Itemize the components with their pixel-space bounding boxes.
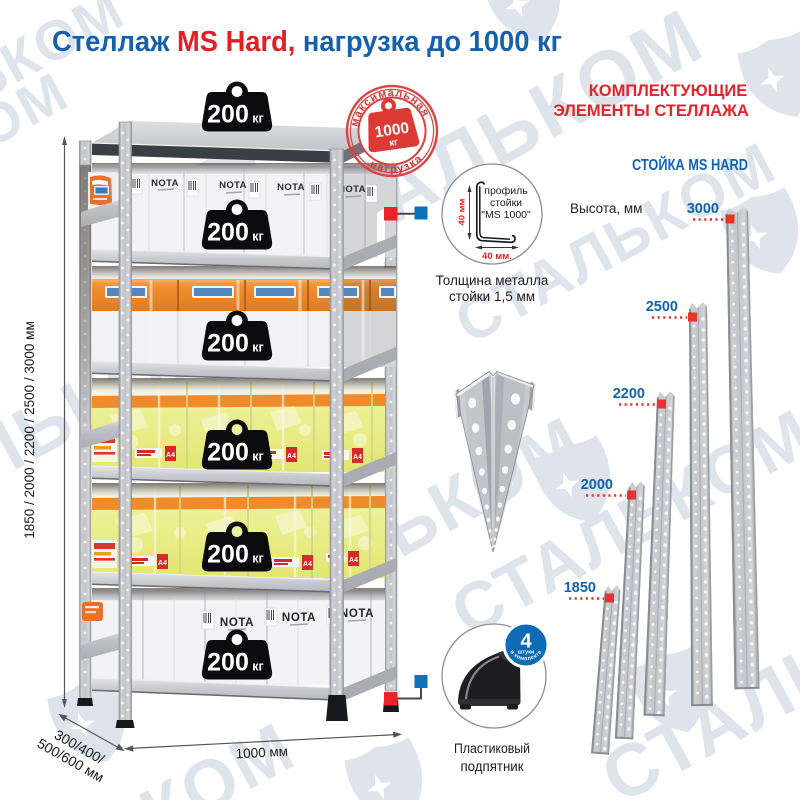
svg-text:200: 200 [207, 330, 249, 358]
svg-text:NOTA: NOTA [340, 608, 374, 620]
svg-text:1000 мм: 1000 мм [235, 744, 288, 762]
svg-text:Толщина металла: Толщина металла [436, 273, 549, 288]
svg-text:стойки: стойки [490, 197, 522, 209]
svg-text:A4: A4 [287, 453, 296, 460]
svg-text:КОМПЛЕКТУЮЩИЕ: КОМПЛЕКТУЮЩИЕ [589, 82, 748, 100]
svg-text:A4: A4 [158, 560, 167, 567]
svg-text:подпятник: подпятник [461, 759, 524, 774]
svg-text:A4: A4 [349, 557, 358, 564]
svg-text:"MS 1000": "MS 1000" [481, 209, 531, 221]
svg-text:200: 200 [207, 219, 249, 247]
svg-text:2500: 2500 [646, 299, 678, 315]
svg-text:40 мм: 40 мм [457, 199, 467, 226]
svg-text:A4: A4 [166, 452, 175, 459]
svg-text:кг: кг [252, 660, 263, 674]
svg-text:40 мм.: 40 мм. [482, 251, 512, 262]
svg-text:1850: 1850 [564, 580, 596, 596]
svg-text:Стеллаж MS Hard, нагрузка до 1: Стеллаж MS Hard, нагрузка до 1000 кг [52, 26, 562, 58]
svg-text:200: 200 [207, 649, 249, 677]
svg-text:2000: 2000 [581, 477, 613, 493]
svg-text:кг: кг [252, 552, 263, 566]
svg-text:200: 200 [207, 541, 249, 569]
svg-text:NOTA: NOTA [282, 612, 316, 624]
svg-text:NOTA: NOTA [219, 180, 247, 191]
svg-text:NOTA: NOTA [277, 182, 305, 193]
svg-text:3000: 3000 [687, 201, 719, 217]
svg-text:кг: кг [252, 450, 263, 464]
svg-text:штуки: штуки [518, 650, 535, 656]
svg-text:Пластиковый: Пластиковый [454, 741, 530, 756]
svg-text:2200: 2200 [613, 386, 645, 402]
svg-text:ЭЛЕМЕНТЫ СТЕЛЛАЖА: ЭЛЕМЕНТЫ СТЕЛЛАЖА [553, 102, 749, 120]
svg-text:A4: A4 [353, 454, 362, 461]
svg-text:Высота, мм: Высота, мм [570, 201, 642, 216]
svg-text:NOTA: NOTA [151, 178, 179, 189]
svg-text:кг: кг [389, 137, 399, 149]
svg-text:СТОЙКА MS HARD: СТОЙКА MS HARD [632, 156, 748, 174]
svg-text:кг: кг [252, 341, 263, 355]
svg-text:200: 200 [207, 439, 249, 467]
svg-text:кг: кг [252, 230, 263, 244]
svg-text:NOTA: NOTA [220, 617, 254, 629]
svg-text:кг: кг [252, 112, 263, 126]
svg-text:A4: A4 [303, 561, 312, 568]
svg-text:1850 / 2000 / 2200 / 2500 / 30: 1850 / 2000 / 2200 / 2500 / 3000 мм [22, 321, 37, 538]
svg-text:профиль: профиль [484, 185, 528, 197]
svg-text:стойки 1,5 мм: стойки 1,5 мм [449, 289, 535, 304]
svg-text:200: 200 [207, 101, 249, 129]
